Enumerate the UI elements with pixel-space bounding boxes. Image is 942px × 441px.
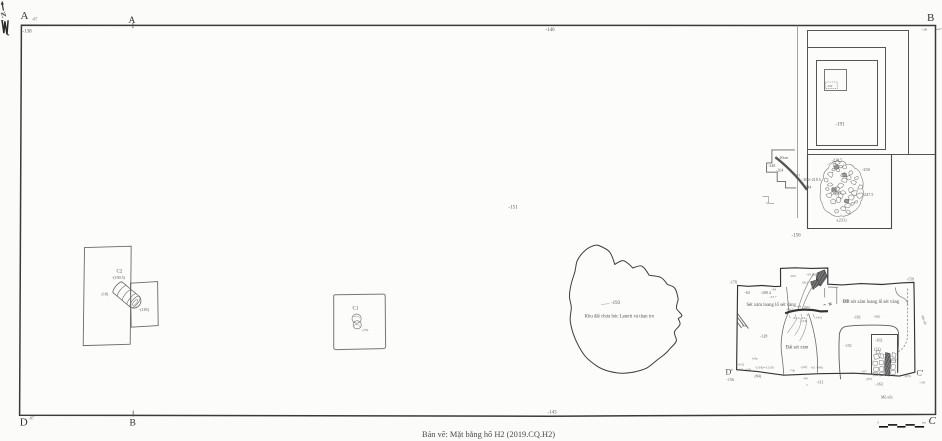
svg-text:(18): (18) bbox=[102, 292, 109, 297]
svg-text:D: D bbox=[20, 417, 28, 429]
svg-text:B: B bbox=[130, 419, 136, 429]
svg-text:-159: -159 bbox=[907, 277, 914, 282]
svg-text:-264: -264 bbox=[776, 167, 783, 172]
svg-text:-156: -156 bbox=[727, 377, 734, 382]
svg-text:-151: -151 bbox=[845, 343, 852, 348]
svg-text:D': D' bbox=[726, 368, 734, 377]
svg-text:Lấn: Lấn bbox=[742, 324, 748, 328]
svg-text:C: C bbox=[929, 415, 937, 427]
svg-text:-138: -138 bbox=[23, 30, 33, 35]
svg-text:-239: -239 bbox=[834, 190, 842, 195]
svg-text:-206/-218.5: -206/-218.5 bbox=[802, 177, 821, 182]
svg-text:C2: C2 bbox=[117, 270, 123, 275]
svg-text:-87: -87 bbox=[32, 17, 37, 22]
svg-text:-107: -107 bbox=[861, 370, 868, 374]
svg-text:-111: -111 bbox=[817, 380, 824, 385]
svg-text:Mộ nồi: Mộ nồi bbox=[881, 395, 894, 400]
svg-text:-102: -102 bbox=[875, 338, 882, 343]
svg-text:C1: C1 bbox=[353, 307, 359, 312]
svg-text:-(185): -(185) bbox=[139, 307, 150, 312]
svg-text:C': C' bbox=[917, 369, 924, 378]
svg-text:40cm: 40cm bbox=[780, 155, 790, 160]
svg-text:(14.5): (14.5) bbox=[736, 363, 744, 367]
svg-text:(9c): (9c) bbox=[803, 281, 808, 285]
svg-text:(6c): (6c) bbox=[795, 173, 800, 177]
svg-text:-178: -178 bbox=[730, 280, 737, 285]
svg-text:bếp: bếp bbox=[753, 357, 758, 361]
svg-text:-218.5: -218.5 bbox=[832, 158, 843, 163]
svg-text:-163: -163 bbox=[876, 382, 883, 387]
svg-text:-191: -191 bbox=[836, 123, 846, 128]
svg-text:-93 (9): -93 (9) bbox=[807, 273, 816, 277]
svg-text:-(79): -(79) bbox=[362, 328, 369, 332]
svg-text:-63: -63 bbox=[745, 290, 750, 295]
svg-text:-53 +: -53 + bbox=[770, 295, 777, 299]
svg-text:-108: -108 bbox=[921, 28, 928, 32]
svg-text:-94.5: -94.5 bbox=[786, 308, 793, 312]
svg-text:-(97): -(97) bbox=[866, 377, 873, 381]
svg-text:-(118)+-(119): -(118)+-(119) bbox=[755, 366, 774, 370]
svg-text:-87: -87 bbox=[29, 416, 34, 421]
svg-text:B: B bbox=[927, 12, 934, 24]
svg-text:(84): (84) bbox=[755, 374, 762, 379]
svg-text:-(10): -(10) bbox=[801, 365, 808, 369]
svg-text:0: 0 bbox=[878, 421, 880, 425]
svg-text:≈: ≈ bbox=[806, 383, 808, 387]
svg-text:-152: -152 bbox=[827, 84, 833, 88]
svg-text:-128: -128 bbox=[760, 334, 767, 339]
svg-text:(14c): (14c) bbox=[815, 316, 822, 320]
svg-text:-73b: -73b bbox=[789, 369, 796, 373]
svg-text:-161: -161 bbox=[854, 315, 861, 320]
svg-text:-247.5: -247.5 bbox=[863, 192, 874, 197]
svg-text:1m: 1m bbox=[922, 421, 927, 425]
svg-text:-151: -151 bbox=[509, 206, 519, 211]
svg-text:-141 -159: -141 -159 bbox=[738, 367, 752, 371]
svg-text:-193: -193 bbox=[611, 301, 621, 306]
svg-text:Đất sét xám loang lổ sét vàng: Đất sét xám loang lổ sét vàng bbox=[843, 299, 900, 305]
svg-text:Bản vẽ: Mặt bằng hố H2 (2019.C: Bản vẽ: Mặt bằng hố H2 (2019.CQ.H2) bbox=[422, 430, 555, 439]
svg-text:-(231): -(231) bbox=[836, 218, 847, 223]
svg-text:Khu đất chưa bóc Laterit và th: Khu đất chưa bóc Laterit và than tro bbox=[585, 315, 655, 320]
svg-text:-(95): -(95) bbox=[904, 374, 911, 378]
svg-text:-63 -(96): -63 -(96) bbox=[811, 366, 823, 370]
svg-text:-(90): -(90) bbox=[874, 315, 881, 319]
svg-text:-84: -84 bbox=[772, 288, 777, 292]
svg-text:-248: -248 bbox=[768, 163, 775, 168]
svg-text:-64: -64 bbox=[797, 305, 802, 309]
svg-text:-94: -94 bbox=[803, 377, 808, 381]
svg-text:-143: -143 bbox=[548, 410, 558, 415]
svg-text:(9b): (9b) bbox=[804, 305, 810, 309]
svg-text:-258: -258 bbox=[862, 167, 870, 172]
svg-text:-146: -146 bbox=[546, 28, 556, 33]
svg-text:A: A bbox=[21, 10, 29, 22]
svg-text:Đất sét xám: Đất sét xám bbox=[786, 346, 809, 351]
svg-text:A: A bbox=[129, 16, 136, 26]
svg-text:-(190.5): -(190.5) bbox=[112, 275, 126, 280]
svg-text:-145: -145 bbox=[919, 381, 926, 385]
svg-text:-156: -156 bbox=[792, 234, 802, 239]
svg-text:-102: -102 bbox=[790, 274, 797, 278]
